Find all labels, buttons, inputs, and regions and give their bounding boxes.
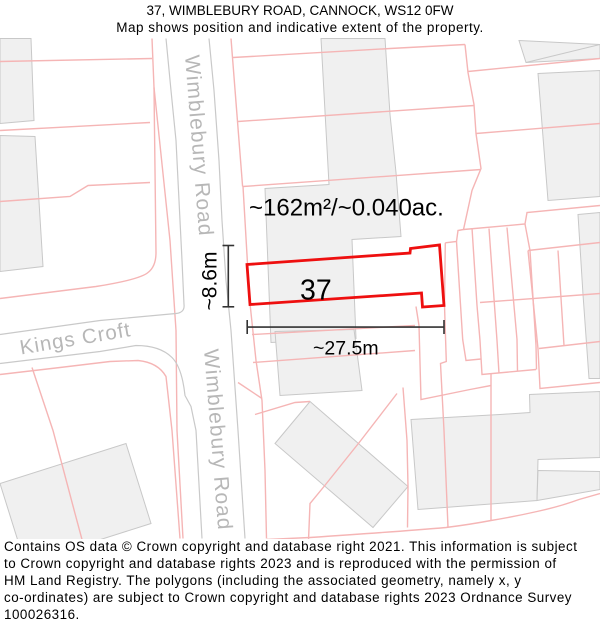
svg-text:~8.6m: ~8.6m [199, 251, 222, 310]
svg-text:37: 37 [300, 274, 332, 306]
svg-text:~27.5m: ~27.5m [313, 337, 379, 359]
svg-text:~162m²/~0.040ac.: ~162m²/~0.040ac. [249, 194, 444, 221]
svg-text:Wimblebury Road: Wimblebury Road [199, 348, 236, 531]
svg-text:Wimblebury Road: Wimblebury Road [180, 54, 217, 237]
